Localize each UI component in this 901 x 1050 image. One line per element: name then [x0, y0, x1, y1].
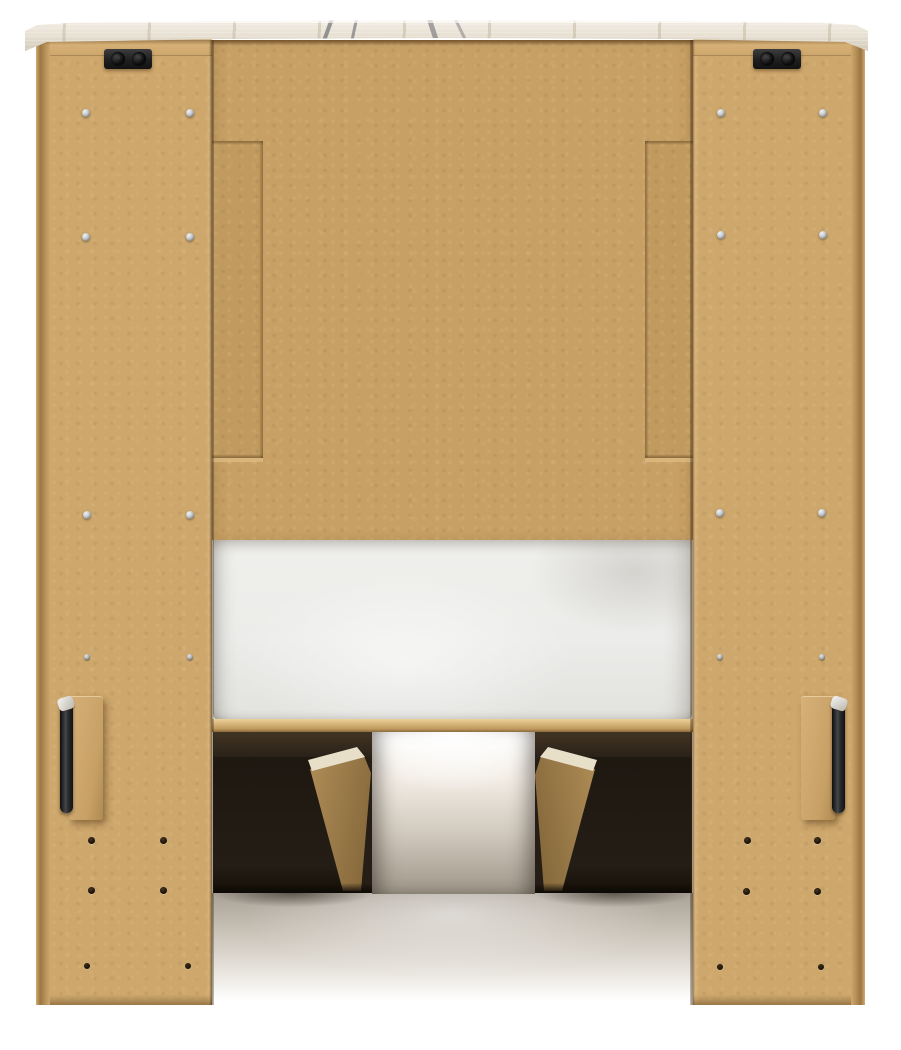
peg-hole	[88, 837, 95, 844]
under-cap-shadow-band	[36, 40, 865, 45]
panel-bottom-edge	[50, 995, 212, 1005]
peg-hole	[160, 837, 167, 844]
assembly-screw	[82, 109, 90, 117]
center-back-panel	[212, 40, 693, 540]
right-panel-seam	[690, 40, 695, 1005]
left-panel-outer-edge	[36, 38, 50, 1005]
floor-shadow	[212, 893, 693, 1010]
peg-hole	[743, 888, 750, 895]
storage-drawer-left	[213, 731, 372, 893]
small-screw	[819, 654, 825, 660]
assembly-screw	[716, 509, 724, 517]
assembly-screw	[717, 109, 725, 117]
board-top-highlight	[25, 20, 868, 23]
small-peg-hole	[185, 963, 191, 969]
cam-arrow-icon	[765, 55, 770, 60]
drawer-bottom-fade	[213, 883, 372, 893]
assembly-screw	[717, 231, 725, 239]
cam-arrow-icon	[786, 55, 791, 60]
handle-block-left	[69, 696, 103, 820]
assembly-screw	[818, 509, 826, 517]
bed-rail	[212, 719, 693, 732]
handle-bar-left	[60, 700, 73, 813]
small-peg-hole	[818, 964, 824, 970]
strip-right-shadow	[259, 141, 263, 458]
cam-arrow-icon	[137, 55, 142, 60]
notch-strip-left-underlight	[212, 458, 263, 462]
cam-arrow-icon	[116, 55, 121, 60]
assembly-screw	[819, 231, 827, 239]
bed-back-view-photo	[0, 0, 901, 1050]
small-screw	[187, 654, 193, 660]
small-screw	[717, 654, 723, 660]
small-peg-hole	[84, 963, 90, 969]
assembly-screw	[186, 109, 194, 117]
small-peg-hole	[717, 964, 723, 970]
peg-hole	[160, 887, 167, 894]
cam-socket	[781, 52, 795, 66]
strip-top-shadow	[645, 141, 693, 145]
under-bed-glow	[372, 731, 535, 791]
assembly-screw	[186, 511, 194, 519]
assembly-screw	[83, 511, 91, 519]
cam-socket	[111, 52, 125, 66]
foundation-deck	[213, 538, 692, 723]
panel-bottom-edge	[693, 995, 851, 1005]
small-screw	[84, 654, 90, 660]
notch-strip-left	[212, 141, 263, 458]
storage-drawer-right	[535, 731, 692, 893]
cam-lock-bracket-right	[753, 49, 801, 69]
right-tower-panel	[693, 38, 851, 1005]
drawer-contact-shadow	[535, 893, 692, 907]
cam-socket	[760, 52, 774, 66]
handle-bar-right	[832, 700, 845, 813]
strip-top-shadow	[212, 141, 263, 145]
notch-strip-right-underlight	[645, 458, 693, 462]
assembly-screw	[82, 233, 90, 241]
drawer-contact-shadow	[213, 893, 372, 907]
right-panel-outer-edge	[851, 38, 865, 1005]
handle-block-right	[801, 696, 835, 820]
drawer-bottom-fade	[535, 883, 692, 893]
assembly-screw	[819, 109, 827, 117]
cam-lock-bracket-left	[104, 49, 152, 69]
assembly-screw	[186, 233, 194, 241]
peg-hole	[744, 837, 751, 844]
left-panel-seam	[209, 40, 214, 1005]
notch-strip-right	[645, 141, 693, 458]
peg-hole	[814, 837, 821, 844]
cam-socket	[132, 52, 146, 66]
strip-left-shadow	[645, 141, 649, 458]
peg-hole	[88, 887, 95, 894]
peg-hole	[814, 888, 821, 895]
left-tower-panel	[50, 38, 212, 1005]
